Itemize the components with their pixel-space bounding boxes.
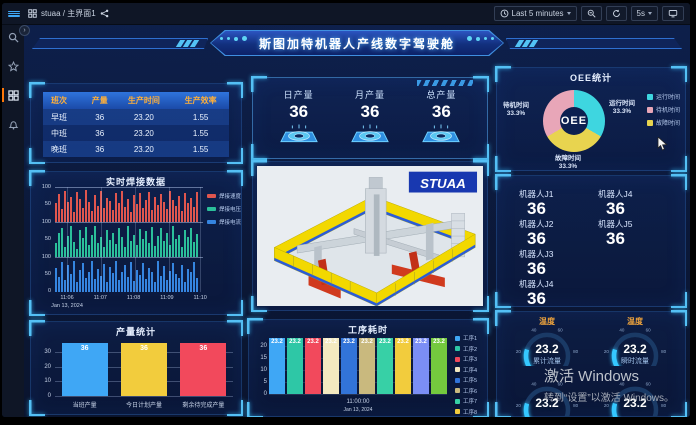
welding-bar — [106, 282, 108, 292]
welding-bar — [181, 265, 183, 292]
grid-line — [67, 187, 68, 292]
bar-value-label: 36 — [199, 345, 207, 352]
gauge: 02040608010023.2 — [503, 370, 591, 417]
robot-value: 36 — [606, 200, 677, 217]
welding-bar — [91, 235, 93, 257]
welding-bar — [79, 230, 81, 257]
welding-bar — [145, 279, 147, 292]
welding-bar — [112, 273, 114, 292]
dashboard-canvas: 斯图加特机器人产线数字驾驶舱 班次产量生产时间生产效率 早班3623.201.5… — [24, 25, 690, 417]
welding-bar — [118, 228, 120, 257]
chevron-down-icon — [567, 12, 571, 15]
welding-bar — [166, 233, 168, 257]
welding-bar — [85, 278, 87, 292]
welding-bar — [82, 208, 84, 222]
oee-donut: OEE — [543, 90, 605, 152]
welding-bar — [181, 211, 183, 222]
shift-table-panel: 班次产量生产时间生产效率 早班3623.201.55中班3623.201.55晚… — [30, 83, 242, 163]
device-platform-icon — [351, 124, 389, 146]
table-header-cell: 产量 — [84, 92, 116, 109]
legend-swatch — [455, 367, 460, 372]
y-axis-tick: 5 — [249, 379, 267, 385]
welding-bar — [196, 234, 198, 257]
welding-bar — [88, 202, 90, 222]
bar-value-label: 23.2 — [360, 339, 374, 345]
welding-bar — [70, 274, 72, 292]
table-cell: 晚班 — [43, 141, 84, 157]
legend-swatch — [647, 120, 653, 126]
welding-bar — [109, 201, 111, 222]
production-card: 总产量36 — [406, 86, 477, 152]
welding-bar — [178, 196, 180, 222]
legend-swatch — [455, 357, 460, 362]
banner-dots-right — [467, 36, 494, 41]
banner-right-wing — [506, 38, 682, 49]
welding-bar — [58, 233, 60, 257]
welding-bar — [175, 239, 177, 257]
welding-legend: 焊接速度焊接电压焊接电流 — [207, 192, 241, 226]
welding-bar — [118, 203, 120, 222]
welding-bar — [130, 212, 132, 222]
robot-stat: 机器人J236 — [519, 218, 598, 248]
welding-bar — [76, 282, 78, 292]
legend-item[interactable]: 工序7 — [455, 397, 480, 405]
gauge-value: 23.2 — [503, 396, 591, 410]
legend-item[interactable]: 焊接电流 — [207, 218, 241, 226]
robot-stat: 机器人J436 — [519, 278, 598, 308]
welding-bar — [61, 262, 63, 292]
legend-item[interactable]: 工序2 — [455, 345, 480, 353]
welding-bar — [97, 206, 99, 222]
welding-bar — [55, 203, 57, 222]
table-row: 晚班3623.201.55 — [43, 141, 229, 157]
welding-bar — [58, 277, 60, 292]
welding-bar — [121, 237, 123, 257]
legend-swatch — [207, 207, 216, 211]
grid-line — [169, 187, 170, 292]
y-axis-tick: 10 — [249, 367, 267, 373]
legend-item[interactable]: 焊接电压 — [207, 205, 241, 213]
oee-panel: OEE统计 OEE运行时间33.3%待机时间33.3%故障时间33.3%运行时间… — [496, 67, 686, 171]
welding-bar — [64, 191, 66, 222]
y-axis-tick: 50 — [33, 201, 51, 207]
gauge-value: 23.2 — [503, 342, 591, 356]
table-cell: 36 — [84, 109, 116, 125]
legend-label: 工序5 — [463, 376, 477, 384]
x-axis-tick: 11:10 — [194, 295, 207, 301]
legend-label: 焊接速度 — [219, 192, 241, 200]
welding-bar — [73, 261, 75, 292]
welding-bar — [193, 242, 195, 257]
device-platform-icon — [280, 124, 318, 146]
welding-bar — [160, 194, 162, 222]
x-axis-date: Jan 13, 2024 — [51, 303, 83, 309]
y-axis-tick: 15 — [249, 355, 267, 361]
welding-bar — [193, 207, 195, 222]
grid-line — [269, 394, 447, 395]
legend-item[interactable]: 工序5 — [455, 376, 480, 384]
x-axis-category: 剩余待完成产量 — [182, 400, 224, 409]
welding-band — [55, 187, 203, 222]
table-header-cell: 班次 — [43, 92, 84, 109]
x-axis-tick: 11:06 — [60, 295, 73, 301]
welding-bar — [163, 241, 165, 257]
legend-label: 故障时间 — [656, 118, 680, 127]
gauge-value: 23.2 — [591, 396, 679, 410]
breadcrumb[interactable]: stuaa / 主界面1 — [28, 8, 109, 19]
legend-swatch — [455, 399, 460, 404]
legend-swatch — [207, 220, 216, 224]
y-axis-tick: 20 — [249, 343, 267, 349]
welding-bar — [121, 272, 123, 292]
panel-title: OEE统计 — [497, 71, 685, 84]
welding-bar — [172, 226, 174, 257]
robot-value: 36 — [527, 260, 598, 277]
welding-bar — [193, 262, 195, 292]
device-platform-icon — [422, 124, 460, 146]
robot-value: 36 — [606, 230, 677, 247]
welding-bar — [148, 243, 150, 257]
bar-value-label: 23.2 — [324, 339, 338, 345]
robot-stat: 机器人J436 — [598, 188, 677, 218]
time-range-picker[interactable]: Last 5 minutes — [494, 6, 577, 21]
table-cell: 23.20 — [115, 141, 172, 157]
welding-band — [55, 222, 203, 257]
welding-bar — [94, 226, 96, 257]
welding-bar — [166, 280, 168, 292]
slice-value: 33.3% — [555, 163, 581, 171]
table-cell: 1.55 — [172, 141, 229, 157]
production-cards-panel: 日产量36月产量36总产量36 — [252, 77, 488, 159]
gauge-tick-label: 60 — [558, 328, 564, 333]
slice-name: 待机时间 — [503, 102, 529, 110]
gauge: 02040608010023.2 — [591, 370, 679, 417]
welding-bar — [76, 249, 78, 258]
welding-bar — [175, 206, 177, 222]
legend-label: 运行时间 — [656, 92, 680, 101]
dashboard-icon — [28, 9, 37, 18]
page-title: 斯图加特机器人产线数字驾驶舱 — [259, 35, 455, 52]
slice-name: 故障时间 — [555, 155, 581, 163]
gauge: 温度02040608010023.2瞬时流量 — [591, 316, 679, 368]
welding-bar — [136, 270, 138, 292]
gauge-title: 温度 — [539, 316, 555, 326]
pie-slice-label: 故障时间33.3% — [555, 155, 581, 172]
robot-stat — [598, 278, 677, 308]
time-range-label: Last 5 minutes — [512, 9, 564, 18]
welding-bar — [139, 229, 141, 257]
welding-bar — [109, 240, 111, 257]
welding-bar — [151, 210, 153, 222]
refresh-interval-picker[interactable]: 5s — [631, 6, 658, 21]
welding-bar — [187, 237, 189, 257]
bell-icon — [8, 119, 19, 130]
table-cell: 36 — [84, 141, 116, 157]
legend-swatch — [647, 107, 653, 113]
welding-bar — [172, 200, 174, 222]
welding-bar — [130, 262, 132, 292]
welding-bar — [55, 243, 57, 257]
legend-swatch — [207, 194, 216, 198]
welding-bar — [127, 199, 129, 222]
banner: 斯图加特机器人产线数字驾驶舱 — [210, 30, 504, 56]
welding-bar — [190, 272, 192, 292]
legend-swatch — [455, 346, 460, 351]
gauge-tick-label: 60 — [646, 382, 652, 387]
robot-stat: 机器人J536 — [598, 218, 677, 248]
production-card: 日产量36 — [263, 86, 334, 152]
welding-bar — [175, 274, 177, 292]
y-axis-tick: 50 — [33, 236, 51, 242]
bar-value-label: 36 — [140, 345, 148, 352]
welding-bar — [187, 269, 189, 292]
sidebar-item-alerting[interactable] — [2, 116, 24, 132]
x-axis-category: 当班产量 — [73, 400, 97, 409]
magnifier-minus-icon — [587, 9, 596, 18]
legend-label: 工序2 — [463, 345, 477, 353]
sidebar-expand-button[interactable]: › — [19, 25, 30, 36]
gauge-tick-label: 60 — [646, 328, 652, 333]
welding-bar — [124, 265, 126, 292]
welding-chart-panel: 实时焊接数据 100501005010050011:0611:0711:0811… — [30, 171, 242, 315]
welding-bar — [136, 245, 138, 257]
refresh-button[interactable] — [606, 6, 627, 21]
welding-bar — [112, 210, 114, 222]
welding-bar — [94, 195, 96, 222]
welding-bar — [106, 198, 108, 222]
panel-title: 工序耗时 — [249, 323, 487, 336]
y-axis-tick: 0 — [249, 391, 267, 397]
bar-value-label: 23.2 — [396, 339, 410, 345]
shift-table: 班次产量生产时间生产效率 早班3623.201.55中班3623.201.55晚… — [43, 92, 229, 157]
share-icon[interactable] — [100, 9, 109, 18]
panel-title: 产量统计 — [31, 325, 241, 338]
welding-bar — [91, 261, 93, 292]
welding-bar — [196, 278, 198, 292]
welding-plot — [55, 187, 203, 292]
legend-swatch — [455, 409, 460, 414]
gauge-tick-label: 40 — [531, 382, 537, 387]
clock-icon — [500, 9, 509, 18]
robot-value: 36 — [527, 200, 598, 217]
menu-icon[interactable] — [8, 9, 20, 19]
bar — [377, 338, 393, 394]
y-axis-tick: 0 — [33, 393, 51, 399]
welding-bar — [154, 246, 156, 257]
apps-grid-icon — [8, 90, 19, 101]
legend-item[interactable]: 工序8 — [455, 408, 480, 416]
welding-bar — [61, 228, 63, 257]
welding-bar — [118, 280, 120, 292]
bar-value-label: 23.2 — [432, 339, 446, 345]
welding-bar — [79, 270, 81, 292]
bar — [359, 338, 375, 394]
bar-value-label: 23.2 — [414, 339, 428, 345]
bar-value-label: 23.2 — [288, 339, 302, 345]
production-card: 月产量36 — [334, 86, 405, 152]
bar-value-label: 23.2 — [270, 339, 284, 345]
shift-table-head: 班次产量生产时间生产效率 — [43, 92, 229, 109]
welding-bar — [127, 226, 129, 257]
bar — [269, 338, 285, 394]
welding-bar — [154, 282, 156, 292]
table-cell: 36 — [84, 125, 116, 141]
card-label: 月产量 — [355, 88, 385, 101]
welding-bar — [85, 227, 87, 257]
card-value: 36 — [289, 102, 308, 122]
welding-bar — [139, 275, 141, 292]
welding-bar — [79, 199, 81, 222]
legend-item[interactable]: 焊接速度 — [207, 192, 241, 200]
gauge-tick-label: 40 — [619, 382, 625, 387]
sidebar: › — [2, 25, 24, 417]
welding-bar — [166, 209, 168, 222]
table-row: 早班3623.201.55 — [43, 109, 229, 125]
star-icon — [8, 61, 19, 72]
welding-bar — [160, 276, 162, 292]
welding-bar — [88, 245, 90, 257]
legend-label: 工序3 — [463, 355, 477, 363]
machine-3d-render: STUAA — [257, 166, 483, 306]
welding-bar — [130, 241, 132, 257]
oee-legend: 运行时间待机时间故障时间 — [647, 92, 680, 127]
welding-bar — [55, 268, 57, 292]
slice-name: 运行时间 — [609, 100, 635, 108]
welding-bar — [178, 235, 180, 257]
search-icon — [8, 32, 19, 43]
welding-bar — [76, 192, 78, 222]
tv-mode-button[interactable] — [662, 6, 684, 21]
breadcrumb-text: stuaa / 主界面1 — [41, 8, 96, 19]
grid-line — [101, 187, 102, 292]
legend-item[interactable]: 故障时间 — [647, 118, 680, 127]
y-axis-tick: 100 — [33, 254, 51, 260]
banner-dots-left — [220, 36, 247, 41]
legend-item[interactable]: 待机时间 — [647, 105, 680, 114]
y-axis-tick: 30 — [33, 349, 51, 355]
zoom-out-button[interactable] — [581, 6, 602, 21]
welding-bar — [58, 194, 60, 222]
y-axis-tick: 50 — [33, 271, 51, 277]
legend-label: 焊接电压 — [219, 205, 241, 213]
table-cell: 早班 — [43, 109, 84, 125]
welding-bar — [64, 247, 66, 257]
topbar: stuaa / 主界面1 Last 5 minutes 5s — [2, 3, 690, 25]
welding-bar — [103, 264, 105, 292]
x-axis-tick: 11:08 — [127, 295, 140, 301]
welding-bar — [109, 267, 111, 292]
gauge-tick-label: 40 — [619, 328, 625, 333]
process-time-panel: 工序耗时 0510152023.223.223.223.223.223.223.… — [248, 319, 488, 417]
welding-bar — [106, 230, 108, 257]
bar — [431, 338, 447, 394]
slice-value: 33.3% — [503, 110, 529, 118]
legend-label: 工序1 — [463, 334, 477, 342]
table-cell: 1.55 — [172, 109, 229, 125]
welding-bar — [97, 243, 99, 257]
welding-bar — [97, 269, 99, 292]
legend-item[interactable]: 工序4 — [455, 366, 480, 374]
table-cell: 23.20 — [115, 109, 172, 125]
table-row: 中班3623.201.55 — [43, 125, 229, 141]
welding-bar — [82, 263, 84, 292]
gauge-sublabel: 瞬时流量 — [591, 356, 679, 366]
bar — [413, 338, 429, 394]
welding-bar — [157, 236, 159, 257]
gauge-tick-label: 40 — [531, 328, 537, 333]
oee-center-label: OEE — [560, 107, 588, 135]
refresh-interval-label: 5s — [637, 9, 645, 18]
welding-bar — [145, 200, 147, 222]
sidebar-item-starred[interactable] — [2, 58, 24, 74]
x-axis-date: Jan 13, 2024 — [344, 407, 373, 413]
legend-label: 工序7 — [463, 397, 477, 405]
legend-swatch — [647, 94, 653, 100]
card-value: 36 — [432, 102, 451, 122]
welding-bar — [154, 197, 156, 222]
welding-bar — [148, 192, 150, 222]
bar — [395, 338, 411, 394]
welding-bar — [103, 247, 105, 257]
welding-bar — [73, 212, 75, 222]
welding-bar — [82, 238, 84, 257]
x-axis-tick: 11:00:00 — [347, 399, 370, 405]
card-value: 36 — [361, 102, 380, 122]
y-axis-tick: 100 — [33, 219, 51, 225]
machine-cad-drawing: STUAA — [257, 166, 483, 306]
welding-bar — [181, 247, 183, 257]
x-axis-tick: 11:09 — [160, 295, 173, 301]
welding-bar — [151, 272, 153, 292]
table-cell: 1.55 — [172, 125, 229, 141]
legend-label: 工序4 — [463, 366, 477, 374]
sidebar-item-dashboards[interactable] — [2, 87, 24, 103]
y-axis-tick: 20 — [33, 364, 51, 370]
welding-bar — [112, 233, 114, 257]
legend-item[interactable]: 工序3 — [455, 355, 480, 363]
welding-bar — [163, 266, 165, 292]
bar-value-label: 23.2 — [342, 339, 356, 345]
legend-label: 工序6 — [463, 387, 477, 395]
welding-bar — [172, 263, 174, 292]
monitor-icon — [668, 9, 678, 18]
legend-swatch — [455, 378, 460, 383]
welding-bar — [157, 205, 159, 222]
welding-bar — [136, 204, 138, 222]
grid-line — [200, 187, 201, 292]
welding-bar — [151, 227, 153, 257]
legend-item[interactable]: 工序6 — [455, 387, 480, 395]
welding-bar — [190, 198, 192, 222]
bar — [287, 338, 303, 394]
welding-bar — [94, 279, 96, 292]
y-axis-tick: 0 — [33, 288, 51, 294]
legend-item[interactable]: 工序1 — [455, 334, 480, 342]
bar-value-label: 36 — [81, 345, 89, 352]
chevron-down-icon — [648, 12, 652, 15]
bar — [323, 338, 339, 394]
welding-bar — [115, 193, 117, 222]
welding-bar — [190, 228, 192, 257]
welding-bar — [145, 231, 147, 257]
welding-bar — [196, 192, 198, 222]
gauge-sublabel: 累计流量 — [503, 356, 591, 366]
gauge: 温度02040608010023.2累计流量 — [503, 316, 591, 368]
card-label: 日产量 — [284, 88, 314, 101]
robot-stat: 机器人J136 — [519, 188, 598, 218]
legend-item[interactable]: 运行时间 — [647, 92, 680, 101]
process-legend: 工序1工序2工序3工序4工序5工序6工序7工序8工序9工序10 — [455, 334, 480, 417]
